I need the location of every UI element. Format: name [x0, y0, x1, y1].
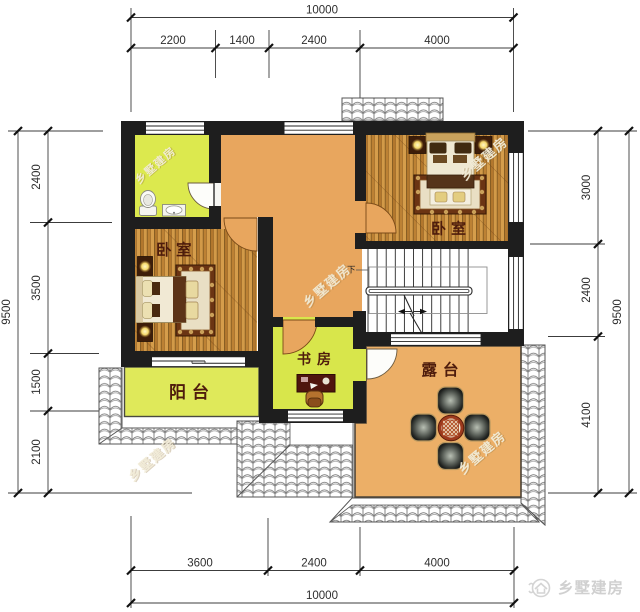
svg-text:1500: 1500 [31, 369, 43, 395]
svg-text:1400: 1400 [229, 35, 255, 47]
svg-text:2400: 2400 [301, 558, 327, 570]
svg-text:3500: 3500 [31, 275, 43, 301]
svg-text:2200: 2200 [160, 35, 186, 47]
svg-text:10000: 10000 [306, 590, 338, 602]
svg-text:2400: 2400 [581, 277, 593, 303]
svg-text:4000: 4000 [424, 558, 450, 570]
svg-text:3600: 3600 [187, 558, 213, 570]
svg-text:露台: 露台 [421, 360, 464, 379]
svg-text:2400: 2400 [301, 35, 327, 47]
svg-text:10000: 10000 [306, 5, 338, 17]
svg-text:4000: 4000 [424, 35, 450, 47]
svg-text:阳台: 阳台 [169, 382, 215, 402]
svg-text:卧室: 卧室 [431, 220, 471, 238]
svg-text:2400: 2400 [31, 164, 43, 190]
svg-text:9500: 9500 [1, 299, 13, 325]
svg-text:3000: 3000 [581, 175, 593, 201]
svg-text:4100: 4100 [581, 402, 593, 428]
svg-text:乡墅建房: 乡墅建房 [558, 578, 624, 597]
svg-text:9500: 9500 [612, 299, 624, 325]
svg-text:卧室: 卧室 [156, 240, 196, 259]
svg-text:2100: 2100 [31, 439, 43, 465]
svg-text:书房: 书房 [297, 351, 337, 367]
